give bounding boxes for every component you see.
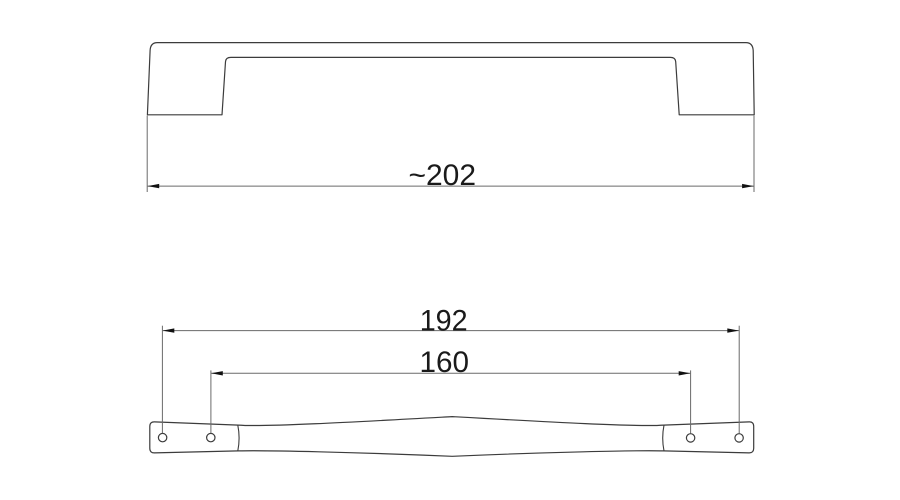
svg-text:~202: ~202: [409, 159, 477, 192]
svg-text:192: 192: [420, 304, 468, 337]
svg-text:160: 160: [420, 346, 470, 379]
